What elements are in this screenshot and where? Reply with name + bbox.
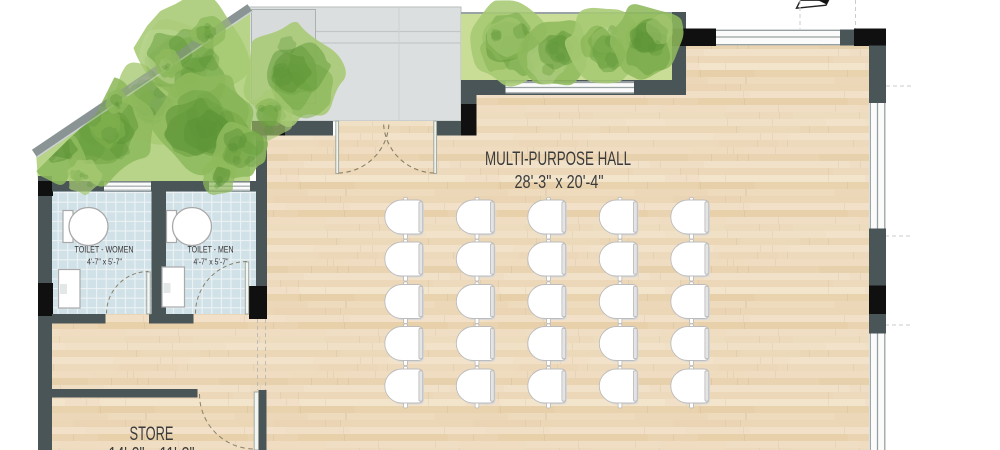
svg-text:MULTI-PURPOSE HALL: MULTI-PURPOSE HALL <box>485 148 631 170</box>
svg-text:28'-3" x 20'-4": 28'-3" x 20'-4" <box>515 172 604 192</box>
svg-text:4'-7" x 5'-7": 4'-7" x 5'-7" <box>87 257 122 267</box>
svg-text:TOILET - MEN: TOILET - MEN <box>188 244 234 255</box>
svg-text:STORE: STORE <box>130 424 174 445</box>
svg-text:TOILET - WOMEN: TOILET - WOMEN <box>75 244 134 255</box>
svg-text:14'-0" x 11'-3": 14'-0" x 11'-3" <box>109 444 195 450</box>
svg-text:4'-7" x 5'-7": 4'-7" x 5'-7" <box>194 257 229 267</box>
